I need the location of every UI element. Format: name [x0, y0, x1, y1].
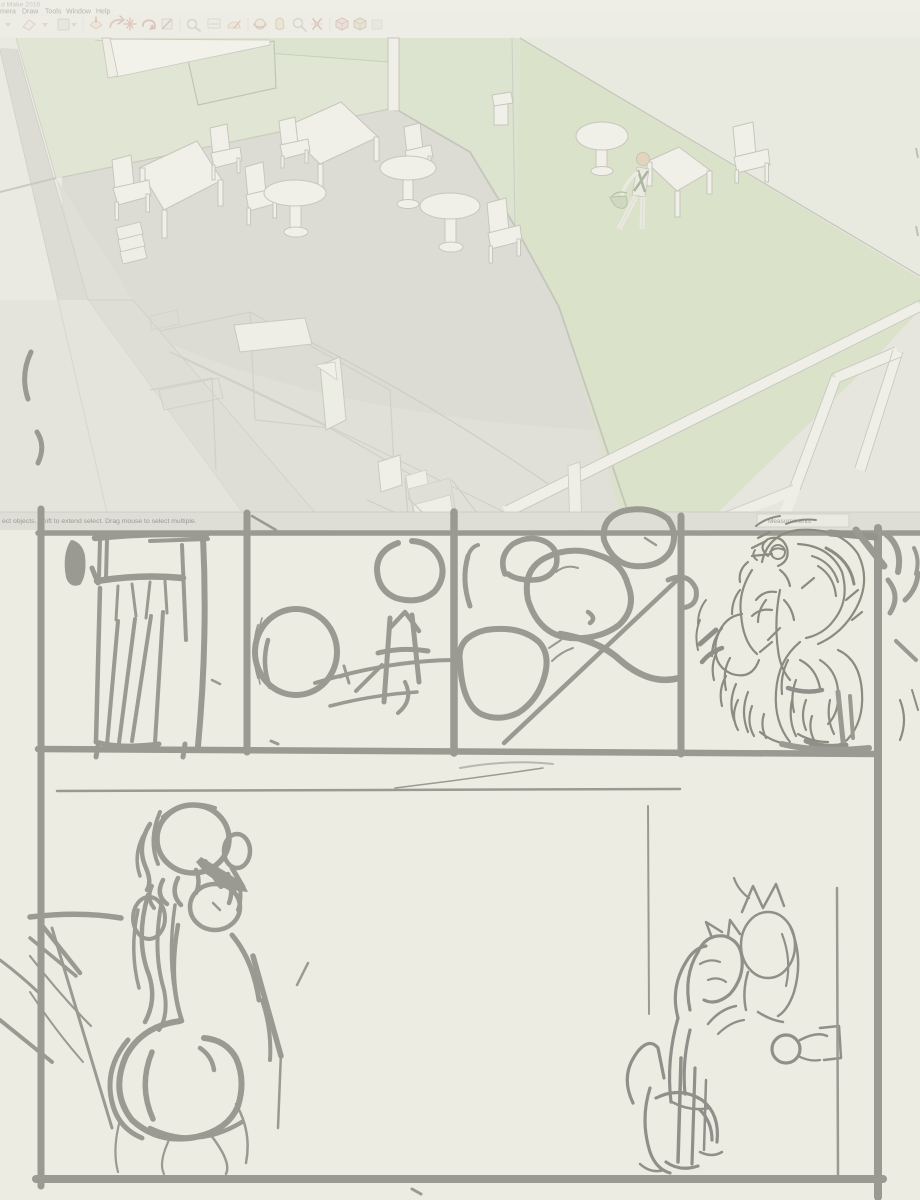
- svg-text:ect objects. Shift to extend s: ect objects. Shift to extend select. Dra…: [2, 518, 197, 525]
